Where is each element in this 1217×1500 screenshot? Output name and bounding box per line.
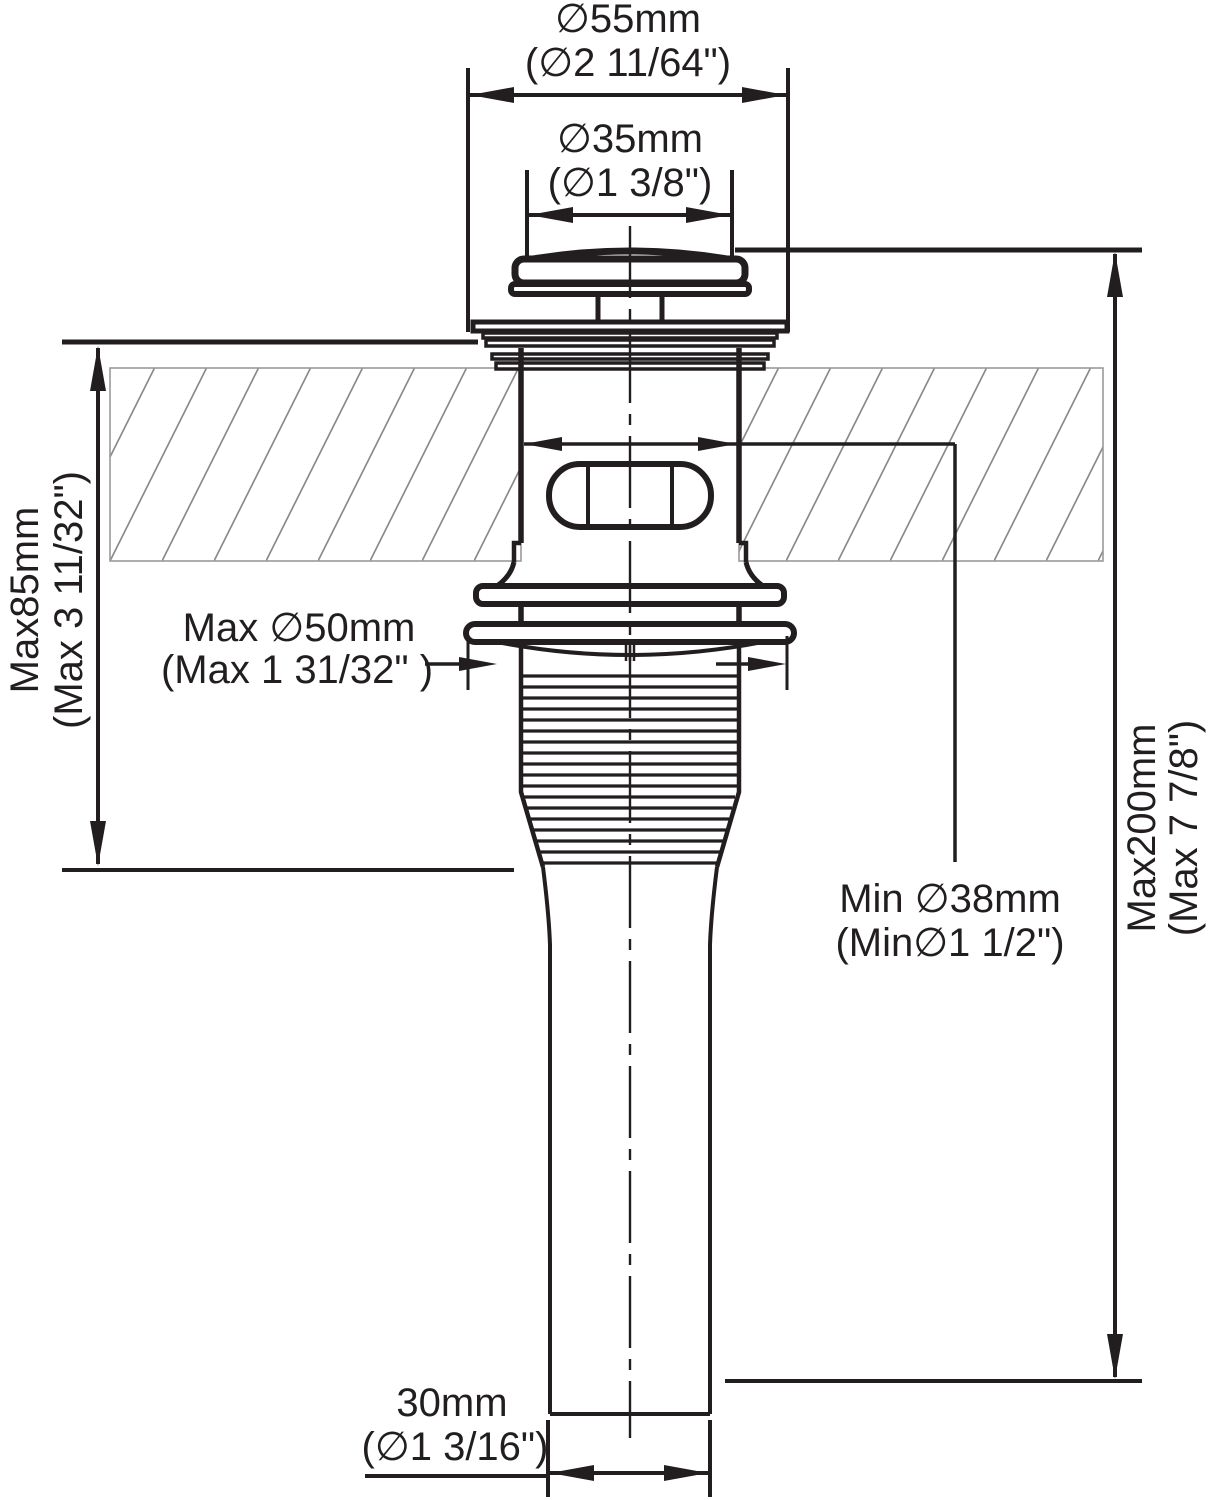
dim38-arrow-left — [524, 437, 562, 451]
dim38-imperial-label: (Min∅1 1/2") — [835, 921, 1064, 965]
dim85-arrow-bottom — [90, 821, 106, 866]
dim30-imperial-label: (∅1 3/16") — [362, 1425, 549, 1469]
drain-dimension-diagram: ∅55mm (∅2 11/64") ∅35mm (∅1 3/8") Max85m… — [0, 0, 1217, 1500]
dim35-arrow-left — [529, 207, 573, 223]
diagram-canvas: ∅55mm (∅2 11/64") ∅35mm (∅1 3/8") Max85m… — [0, 0, 1217, 1500]
dim30-metric-label: 30mm — [396, 1381, 507, 1425]
dim30-arrow-right — [664, 1465, 708, 1481]
dim50-imperial-label: (Max 1 31/32" ) — [161, 648, 433, 692]
dim200-arrow-bottom — [1107, 1334, 1123, 1379]
dim55-metric-label: ∅55mm — [555, 0, 701, 41]
dim-tailpipe: 30mm (∅1 3/16") — [362, 1381, 710, 1497]
dim50-arrow-right — [748, 657, 786, 671]
counter-slab-right — [739, 368, 1103, 561]
dim30-arrow-left — [550, 1465, 594, 1481]
dim200-metric-label: Max200mm — [1120, 724, 1164, 933]
dim85-metric-label: Max85mm — [3, 507, 47, 694]
dim35-metric-label: ∅35mm — [557, 117, 703, 161]
sink-flange — [473, 322, 787, 331]
dim55-arrow-right — [742, 87, 786, 103]
dim-mounting-hole: Max ∅50mm (Max 1 31/32" ) — [161, 606, 787, 692]
dim35-arrow-right — [686, 207, 730, 223]
dim50-arrow-left — [459, 657, 497, 671]
dim38-arrow-right — [698, 437, 736, 451]
dim85-arrow-top — [90, 346, 106, 391]
dim55-arrow-left — [470, 87, 514, 103]
dim200-arrow-top — [1107, 252, 1123, 297]
counter-slab-left — [110, 368, 521, 561]
dim85-imperial-label: (Max 3 11/32") — [47, 471, 91, 729]
dim200-imperial-label: (Max 7 7/8") — [1162, 720, 1206, 936]
dim50-metric-label: Max ∅50mm — [183, 606, 416, 650]
dim38-metric-label: Min ∅38mm — [839, 877, 1061, 921]
dim35-imperial-label: (∅1 3/8") — [548, 161, 713, 205]
dim55-imperial-label: (∅2 11/64") — [525, 41, 731, 85]
